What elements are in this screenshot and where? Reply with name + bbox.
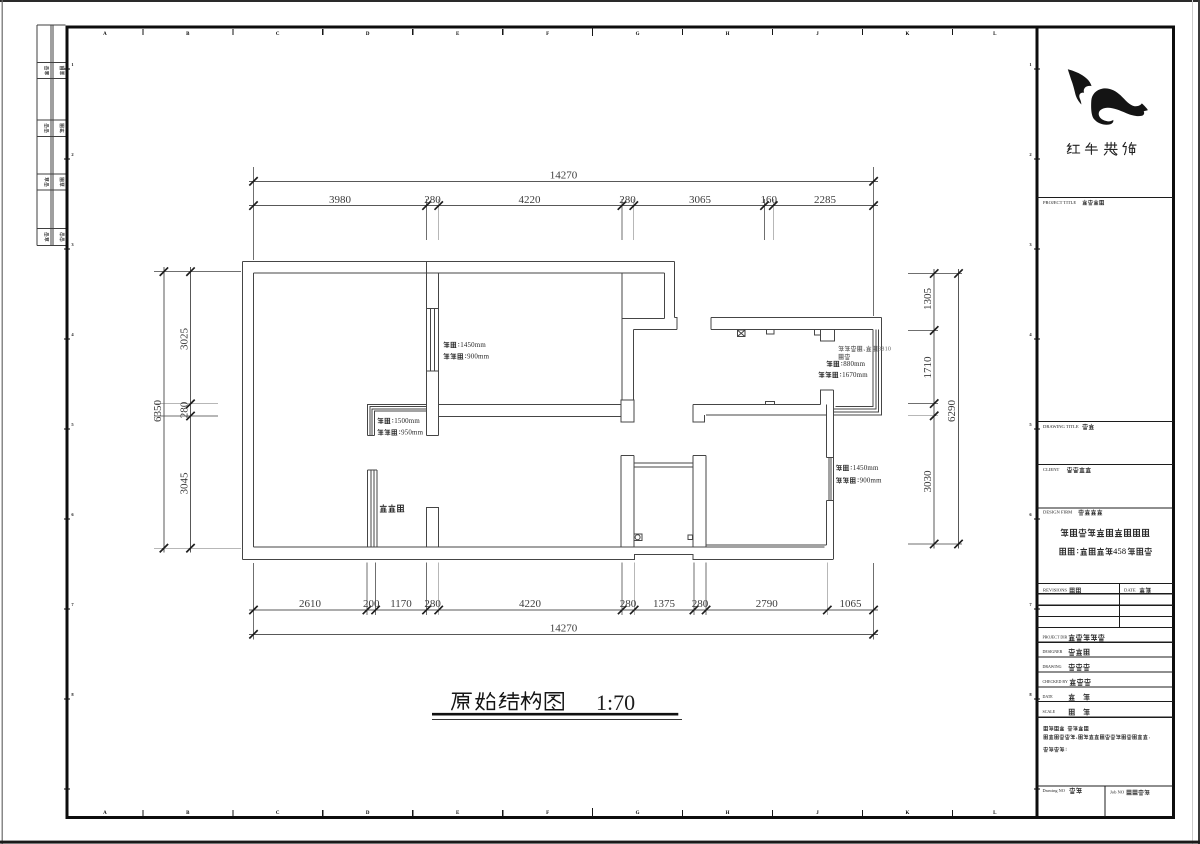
svg-text:3065: 3065 [689,194,712,206]
svg-text:280: 280 [178,401,190,418]
svg-text:PROJECT DIR: PROJECT DIR [1043,635,1068,640]
svg-text:1450mm: 1450mm [853,465,879,472]
svg-text:DRAWING TITLE: DRAWING TITLE [1043,424,1079,429]
svg-text:1375: 1375 [653,598,676,610]
svg-text:1450mm: 1450mm [460,342,486,349]
svg-text:F: F [546,32,549,37]
svg-text:D: D [366,811,370,816]
svg-text:1170: 1170 [390,598,412,610]
svg-text:280: 280 [619,194,636,206]
svg-text:3980: 3980 [329,194,352,206]
svg-text:1710: 1710 [922,356,934,379]
svg-text:C: C [276,32,280,37]
svg-text:1500mm: 1500mm [394,418,420,425]
svg-text:D: D [366,32,370,37]
svg-text:K: K [906,811,910,816]
svg-text:900mm: 900mm [467,354,489,361]
svg-text:4220: 4220 [519,598,542,610]
svg-text:A: A [103,32,107,37]
svg-text:DATE: DATE [1043,694,1054,699]
svg-text:DESIGN FIRM: DESIGN FIRM [1043,510,1072,515]
svg-text:14270: 14270 [550,169,578,181]
svg-text:REVISIONS: REVISIONS [1043,588,1067,593]
svg-text:280: 280 [424,598,441,610]
svg-text:PROJECT TITLE: PROJECT TITLE [1043,200,1076,205]
svg-text:458: 458 [1113,547,1126,556]
svg-text:F: F [546,811,549,816]
svg-text:CHECKED BY: CHECKED BY [1043,679,1069,684]
svg-text:A: A [103,811,107,816]
svg-text:Job NO: Job NO [1110,790,1125,795]
svg-text:DRAWING: DRAWING [1043,664,1062,669]
svg-text:6290: 6290 [946,400,958,423]
svg-text:1065: 1065 [840,598,863,610]
svg-text:C: C [276,811,280,816]
svg-text:950mm: 950mm [401,430,423,437]
svg-text:3045: 3045 [178,472,190,495]
svg-text:H: H [726,811,730,816]
svg-text:CLIENT: CLIENT [1043,467,1060,472]
svg-text:6350: 6350 [152,400,164,423]
svg-text:900mm: 900mm [860,478,882,485]
svg-text:2790: 2790 [756,598,779,610]
svg-text:1305: 1305 [922,288,934,311]
svg-text:3025: 3025 [178,328,190,351]
svg-text:160: 160 [761,194,778,206]
svg-text:14270: 14270 [550,623,578,635]
svg-text:1670mm: 1670mm [842,372,868,379]
svg-text:280: 280 [620,598,637,610]
svg-text:1:70: 1:70 [596,690,635,715]
svg-text:DESIGNER: DESIGNER [1043,649,1063,654]
svg-text:K: K [906,32,910,37]
svg-text:280: 280 [692,598,709,610]
svg-text:SCALE: SCALE [1043,709,1056,714]
svg-text:280: 280 [424,194,441,206]
svg-text:3810: 3810 [878,346,891,353]
svg-text:2610: 2610 [299,598,322,610]
svg-text:G: G [636,32,640,37]
svg-text:880mm: 880mm [843,361,865,368]
svg-text:Drawing NO: Drawing NO [1043,788,1065,793]
svg-text:3030: 3030 [922,470,934,493]
svg-text:200: 200 [363,598,380,610]
svg-text:4220: 4220 [519,194,542,206]
svg-text:2285: 2285 [814,194,837,206]
svg-text:DATE: DATE [1124,588,1136,593]
svg-text:G: G [636,811,640,816]
svg-text:H: H [726,32,730,37]
